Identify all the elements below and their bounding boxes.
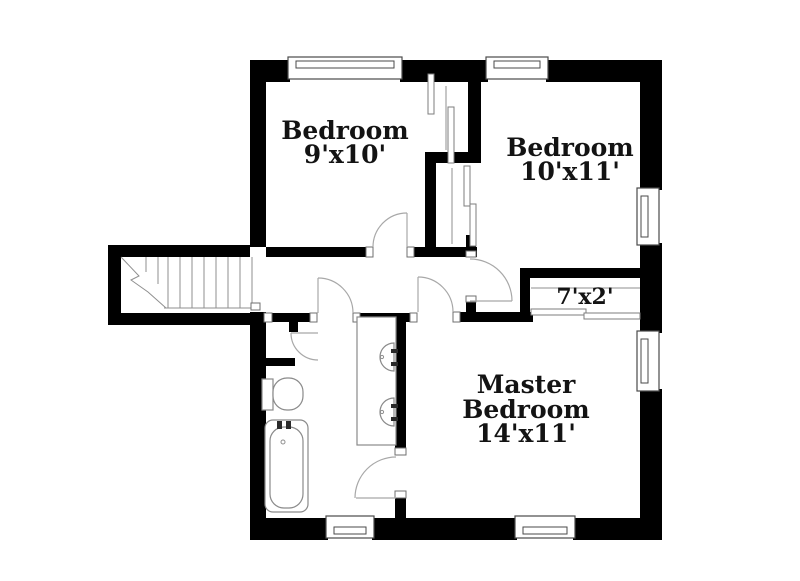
door-bathroom-hall xyxy=(318,278,353,313)
door-bathroom-master xyxy=(355,457,396,498)
vanity-counter xyxy=(357,317,398,445)
door-bedroom2 xyxy=(470,259,512,301)
floor-plan-svg: Bedroom 9'x10' Bedroom 10'x11' 7'x2' Mas… xyxy=(0,0,800,581)
bedroom2-size: 10'x11' xyxy=(520,157,620,186)
door-bedroom1 xyxy=(373,213,407,247)
toilet xyxy=(262,378,303,410)
door-hall-closet xyxy=(291,333,318,360)
bedroom2-closet-door xyxy=(464,166,470,206)
bathroom-fixtures xyxy=(262,317,398,512)
bedroom1-size: 9'x10' xyxy=(304,140,386,169)
sliding-doors xyxy=(428,74,640,319)
window-master-bottom xyxy=(515,516,575,538)
closet-7x2-door-2 xyxy=(584,313,640,319)
master-size: 14'x11' xyxy=(476,419,576,448)
stair-break-line xyxy=(121,257,166,308)
window-bedroom2-top xyxy=(486,57,548,79)
window-bedroom1-top xyxy=(288,57,402,79)
window-master-right xyxy=(637,331,659,391)
window-bedroom2-right xyxy=(637,188,659,245)
bedroom2-closet-door-2 xyxy=(470,204,476,246)
closet-size: 7'x2' xyxy=(556,284,613,310)
window-bathroom-bottom xyxy=(326,516,374,538)
door-master xyxy=(418,277,453,312)
bedroom1-closet-door-2 xyxy=(448,107,454,163)
staircase xyxy=(121,257,260,310)
bathtub xyxy=(265,420,308,512)
stair-newel xyxy=(251,303,260,310)
floor-plan: Bedroom 9'x10' Bedroom 10'x11' 7'x2' Mas… xyxy=(0,0,800,581)
bedroom1-closet-door xyxy=(428,74,434,114)
